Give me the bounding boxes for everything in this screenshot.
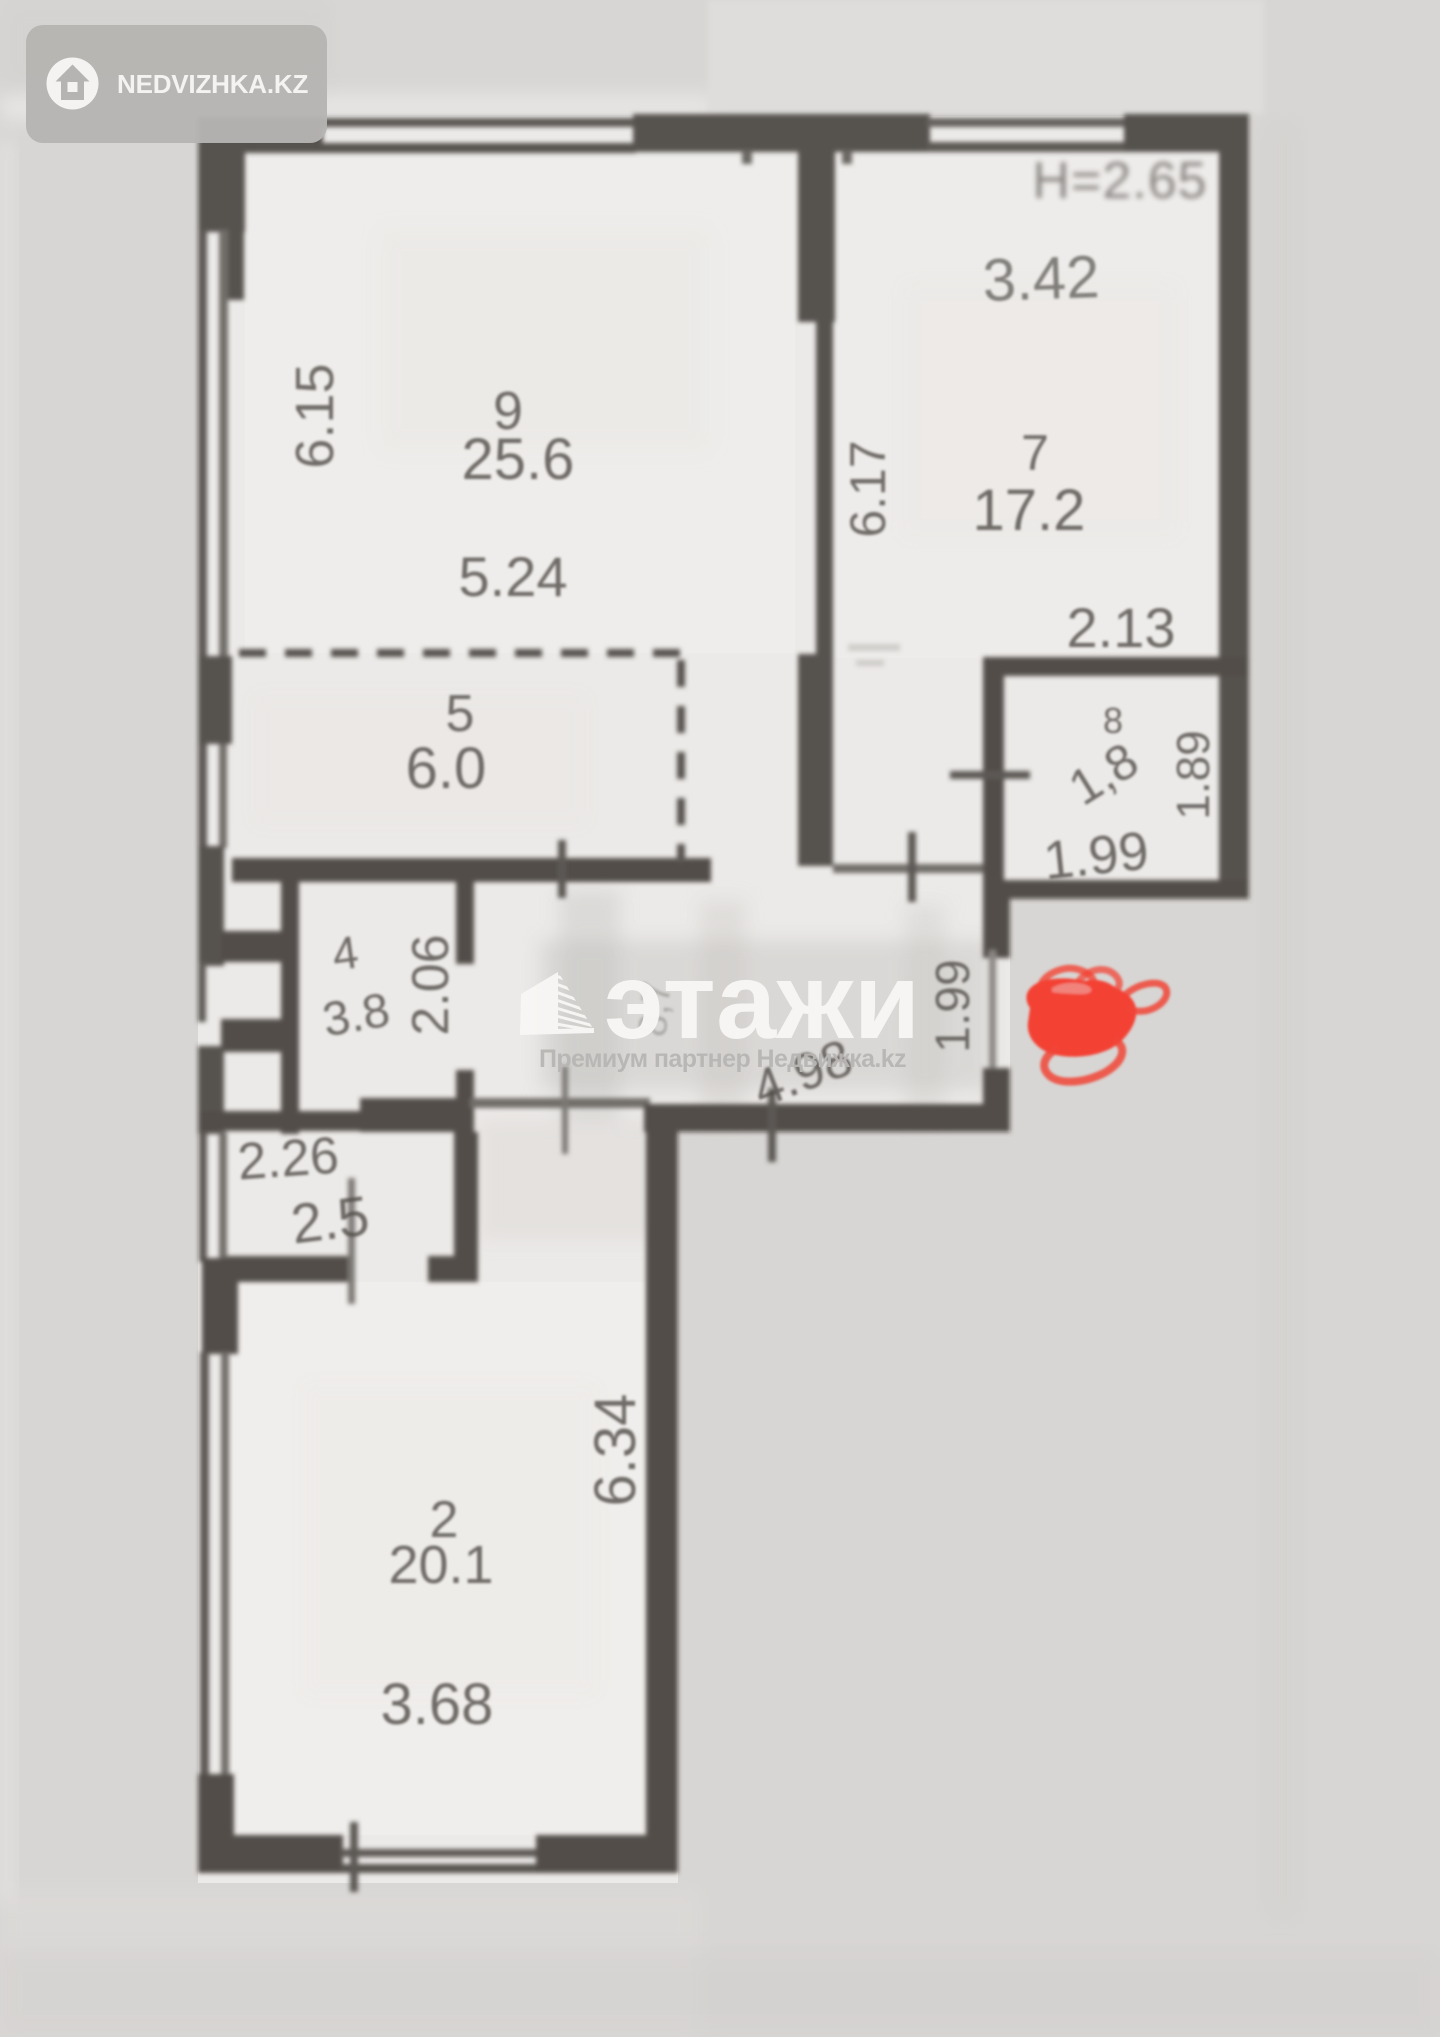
svg-text:6.17: 6.17 — [840, 440, 896, 537]
svg-text:этажи: этажи — [604, 940, 921, 1061]
svg-text:25.6: 25.6 — [462, 427, 575, 492]
svg-text:20.1: 20.1 — [388, 1535, 493, 1595]
svg-text:2.5: 2.5 — [288, 1183, 373, 1255]
svg-text:1.89: 1.89 — [1167, 730, 1219, 820]
svg-text:2.26: 2.26 — [236, 1127, 341, 1192]
svg-text:5: 5 — [446, 685, 475, 743]
svg-text:7: 7 — [1021, 425, 1049, 481]
svg-text:1.99: 1.99 — [927, 959, 980, 1052]
svg-text:NEDVIZHKA.KZ: NEDVIZHKA.KZ — [117, 69, 308, 99]
svg-text:3.42: 3.42 — [982, 243, 1101, 314]
svg-text:6.15: 6.15 — [285, 363, 345, 468]
svg-text:5.24: 5.24 — [459, 545, 568, 608]
svg-text:2.13: 2.13 — [1067, 596, 1176, 659]
svg-text:H=2.65: H=2.65 — [1032, 152, 1207, 210]
svg-text:17.2: 17.2 — [973, 478, 1086, 543]
svg-text:3.68: 3.68 — [381, 1672, 494, 1737]
svg-text:6.34: 6.34 — [583, 1394, 648, 1507]
svg-text:1.99: 1.99 — [1041, 821, 1152, 892]
svg-text:Премиум партнер Недвижка.kz: Премиум партнер Недвижка.kz — [539, 1045, 906, 1073]
svg-text:2.06: 2.06 — [402, 934, 460, 1035]
svg-text:6.0: 6.0 — [406, 736, 487, 801]
